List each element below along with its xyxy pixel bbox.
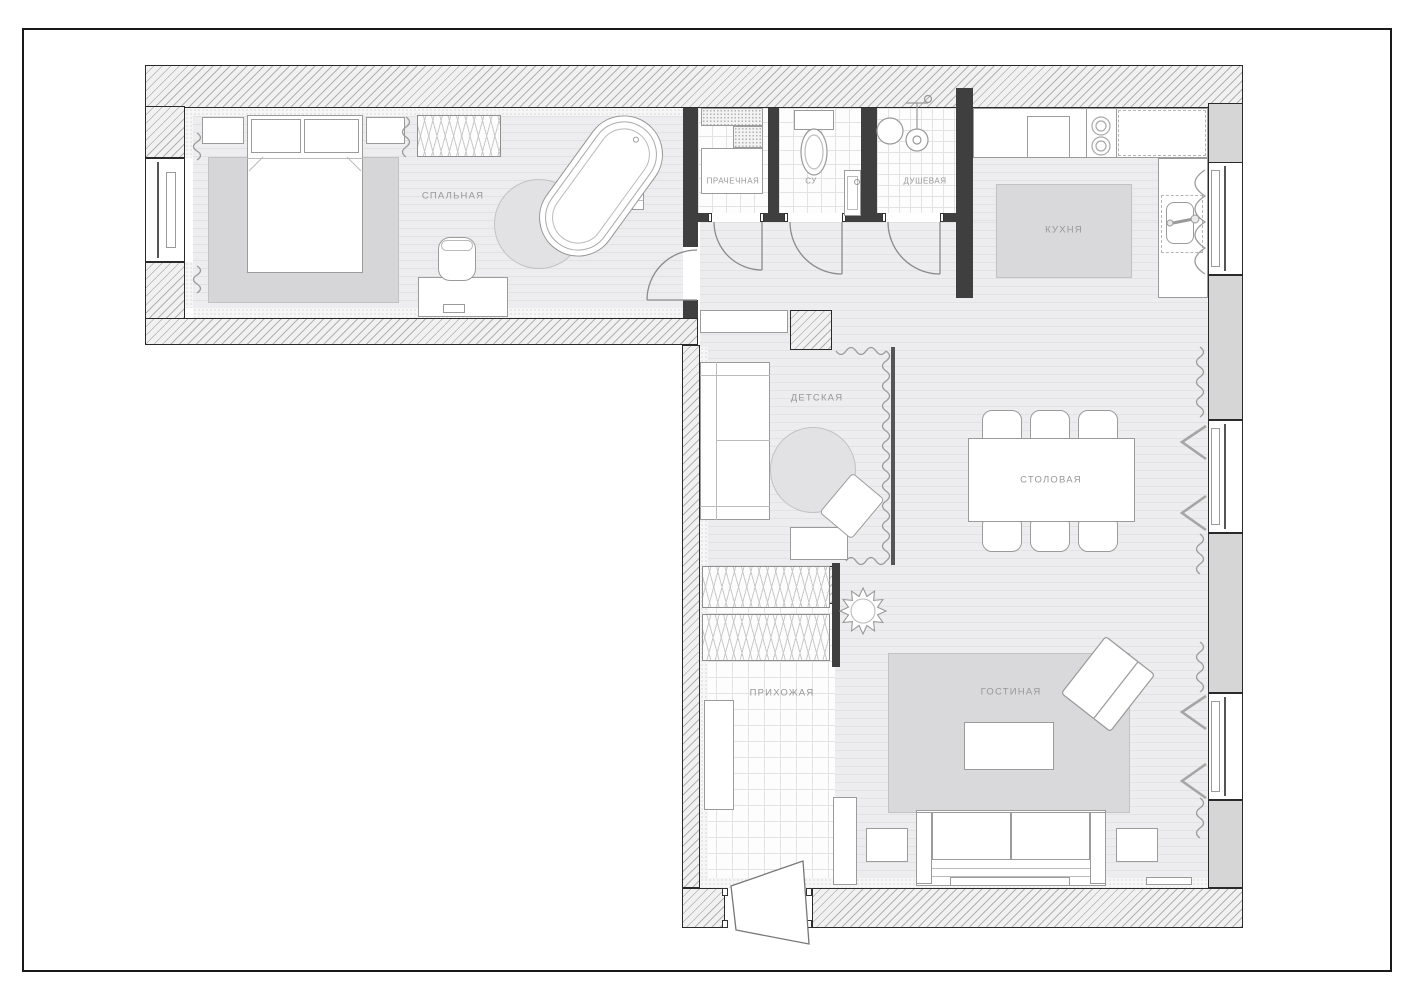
curtain-right-4	[1197, 798, 1204, 838]
door-laundry	[714, 222, 762, 270]
toilet-bowl-inner	[805, 135, 823, 169]
shower-pipe	[906, 103, 928, 129]
floor-plan-sheet: СПАЛЬНАЯ ПРАЧЕЧНАЯ СУ ДУШЕВАЯ КУХНЯ ДЕТС…	[0, 0, 1414, 1000]
plan-svg-overlay	[0, 0, 1414, 1000]
shower-head	[906, 129, 928, 151]
blanket-fold-left	[249, 157, 263, 171]
kitchen-faucet-lever	[1173, 219, 1193, 223]
armchair	[1061, 637, 1154, 732]
curtain-right-3	[1197, 642, 1204, 692]
burner-1	[1092, 117, 1110, 135]
burner-2-inner	[1096, 141, 1106, 151]
curtain-bedroom-window-bottom	[194, 266, 201, 293]
blind-chevron-living-1	[1182, 696, 1206, 729]
room-label-shower: ДУШЕВАЯ	[904, 177, 947, 186]
burner-1-inner	[1096, 121, 1106, 131]
room-label-wc: СУ	[805, 177, 817, 186]
door-bedroom	[647, 250, 697, 300]
room-label-kitchen: КУХНЯ	[1045, 225, 1083, 236]
room-label-laundry: ПРАЧЕЧНАЯ	[707, 177, 760, 186]
curtain-kids-bottom	[846, 558, 886, 565]
blind-chevron-dining-1	[1182, 426, 1206, 459]
room-label-kids: ДЕТСКАЯ	[791, 393, 844, 404]
door-shower	[888, 222, 940, 274]
kitchen-faucet-base	[1167, 220, 1173, 226]
room-label-hallway: ПРИХОЖАЯ	[750, 688, 815, 699]
curtain-bedroom-wall	[403, 117, 410, 157]
shower-sink	[877, 118, 903, 144]
curtain-bedroom-window-top	[194, 133, 201, 160]
blanket-fold-right	[347, 157, 361, 171]
blind-chevron-dining-2	[1182, 496, 1206, 530]
shower-valve	[925, 96, 932, 103]
curtain-right-1	[1197, 347, 1204, 417]
entry-door-leaf	[731, 861, 809, 944]
curtain-kids-side	[883, 351, 890, 561]
room-label-dining: СТОЛОВАЯ	[1020, 475, 1082, 486]
curtain-right-2	[1197, 534, 1204, 574]
kitchen-faucet-head	[1191, 215, 1199, 223]
wc-faucet	[855, 180, 860, 185]
plant	[840, 588, 886, 634]
blind-chevron-living-2	[1182, 764, 1206, 798]
room-label-bedroom: СПАЛЬНАЯ	[422, 191, 484, 202]
curtain-track-kids	[891, 347, 895, 565]
burner-2	[1092, 137, 1110, 155]
curtain-kids-top	[836, 348, 886, 355]
room-label-living: ГОСТИНАЯ	[981, 687, 1042, 698]
door-wc	[790, 222, 842, 274]
